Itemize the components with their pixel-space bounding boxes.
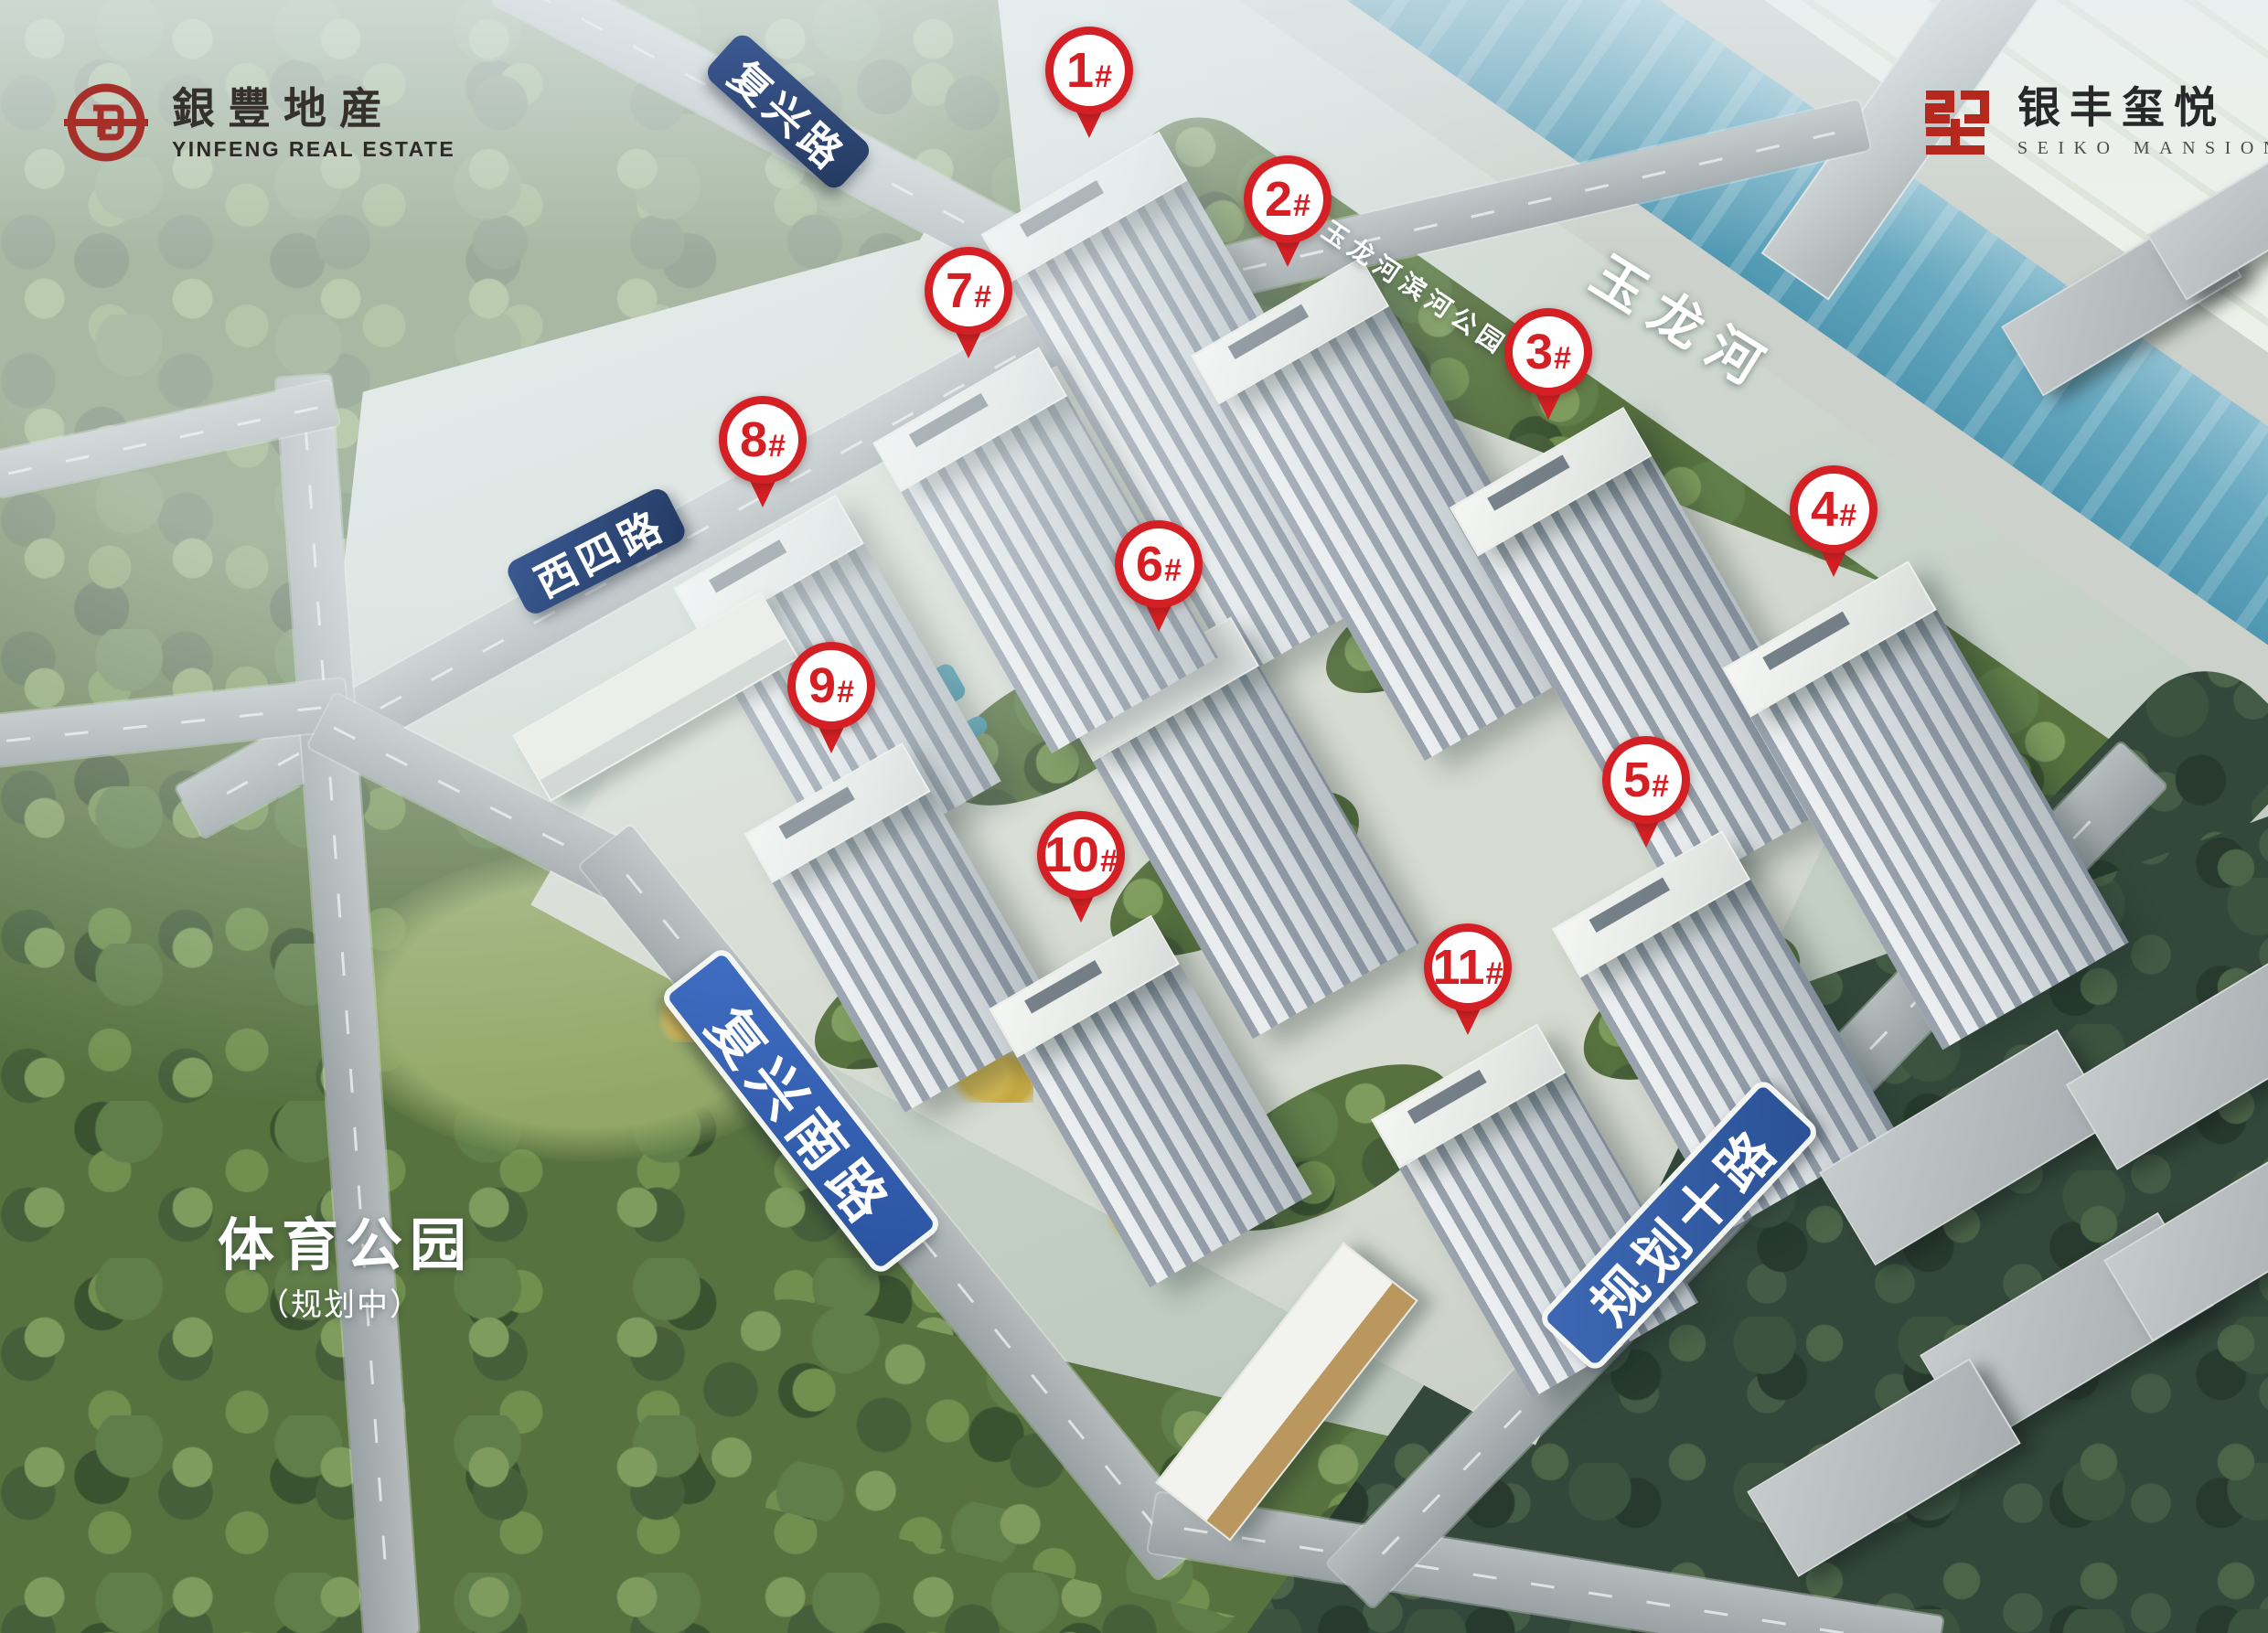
place-label-text: （规划中）: [258, 1288, 423, 1323]
road-west-vertical: [276, 375, 419, 1633]
marker-number: 5: [1623, 755, 1651, 805]
marker-hash-suffix: #: [1095, 61, 1112, 92]
place-label: （规划中）: [258, 1280, 423, 1325]
seiko-mansion-en-name: SEIKO MANSION: [2017, 138, 2268, 159]
marker-circle: 2#: [1244, 155, 1332, 243]
marker-hash-suffix: #: [1554, 343, 1571, 374]
marker-number: 11: [1432, 943, 1484, 992]
marker-number: 8: [740, 415, 767, 464]
marker-circle: 10#: [1037, 811, 1125, 899]
marker-circle: 4#: [1790, 465, 1878, 553]
masterplan-rendering: 銀豐地産 YINFENG REAL ESTATE 银丰玺悦 SEIKO MANS…: [0, 0, 2268, 1633]
marker-number: 2: [1265, 175, 1292, 224]
marker-number: 3: [1525, 327, 1553, 377]
building-marker-5[interactable]: 5#: [1602, 736, 1690, 873]
existing-building: [2066, 960, 2268, 1169]
marker-circle: 9#: [787, 642, 875, 730]
marker-hash-suffix: #: [1100, 846, 1118, 877]
marker-hash-suffix: #: [837, 677, 854, 708]
place-label: 体育公园: [218, 1199, 474, 1281]
marker-number: 4: [1811, 485, 1838, 534]
building-marker-1[interactable]: 1#: [1045, 27, 1133, 164]
marker-circle: 6#: [1115, 520, 1203, 608]
marker-hash-suffix: #: [1164, 555, 1182, 586]
marker-circle: 5#: [1602, 736, 1690, 824]
marker-hash-suffix: #: [1652, 771, 1669, 802]
marker-number: 6: [1136, 539, 1163, 589]
building-marker-7[interactable]: 7#: [925, 247, 1012, 384]
marker-circle: 7#: [925, 247, 1012, 335]
logo-yinfeng-real-estate: 銀豐地産 YINFENG REAL ESTATE: [64, 80, 455, 169]
marker-circle: 1#: [1045, 27, 1133, 114]
existing-building: [1747, 1358, 2021, 1577]
seiko-mansion-cn-name: 银丰玺悦: [2017, 87, 2268, 132]
seiko-mansion-logo-text: 银丰玺悦 SEIKO MANSION: [2017, 87, 2268, 158]
marker-number: 7: [946, 266, 973, 315]
yinfeng-en-name: YINFENG REAL ESTATE: [172, 137, 455, 162]
marker-hash-suffix: #: [1839, 500, 1856, 531]
marker-hash-suffix: #: [1293, 190, 1311, 221]
marker-circle: 8#: [719, 396, 807, 484]
marker-number: 10: [1044, 830, 1099, 880]
marker-number: 9: [808, 661, 836, 710]
marker-circle: 11#: [1424, 923, 1512, 1011]
seiko-mansion-mark-icon: [1917, 82, 1994, 164]
building-marker-11[interactable]: 11#: [1424, 923, 1512, 1061]
marker-hash-suffix: #: [1486, 958, 1503, 989]
building-marker-10[interactable]: 10#: [1037, 811, 1125, 948]
building-marker-4[interactable]: 4#: [1790, 465, 1878, 603]
marker-hash-suffix: #: [974, 282, 991, 313]
marker-hash-suffix: #: [768, 431, 786, 462]
building-marker-8[interactable]: 8#: [719, 396, 807, 533]
building-marker-9[interactable]: 9#: [787, 642, 875, 779]
logo-seiko-mansion: 银丰玺悦 SEIKO MANSION: [1917, 82, 2268, 164]
building-marker-2[interactable]: 2#: [1244, 155, 1332, 293]
building-marker-6[interactable]: 6#: [1115, 520, 1203, 657]
yinfeng-cn-name: 銀豐地産: [172, 88, 455, 133]
yinfeng-logo-text: 銀豐地産 YINFENG REAL ESTATE: [172, 88, 455, 161]
place-label-text: 体育公园: [218, 1214, 474, 1277]
building-marker-3[interactable]: 3#: [1504, 308, 1592, 445]
yinfeng-seal-icon: [64, 80, 148, 169]
marker-number: 1: [1066, 46, 1094, 95]
marker-circle: 3#: [1504, 308, 1592, 396]
